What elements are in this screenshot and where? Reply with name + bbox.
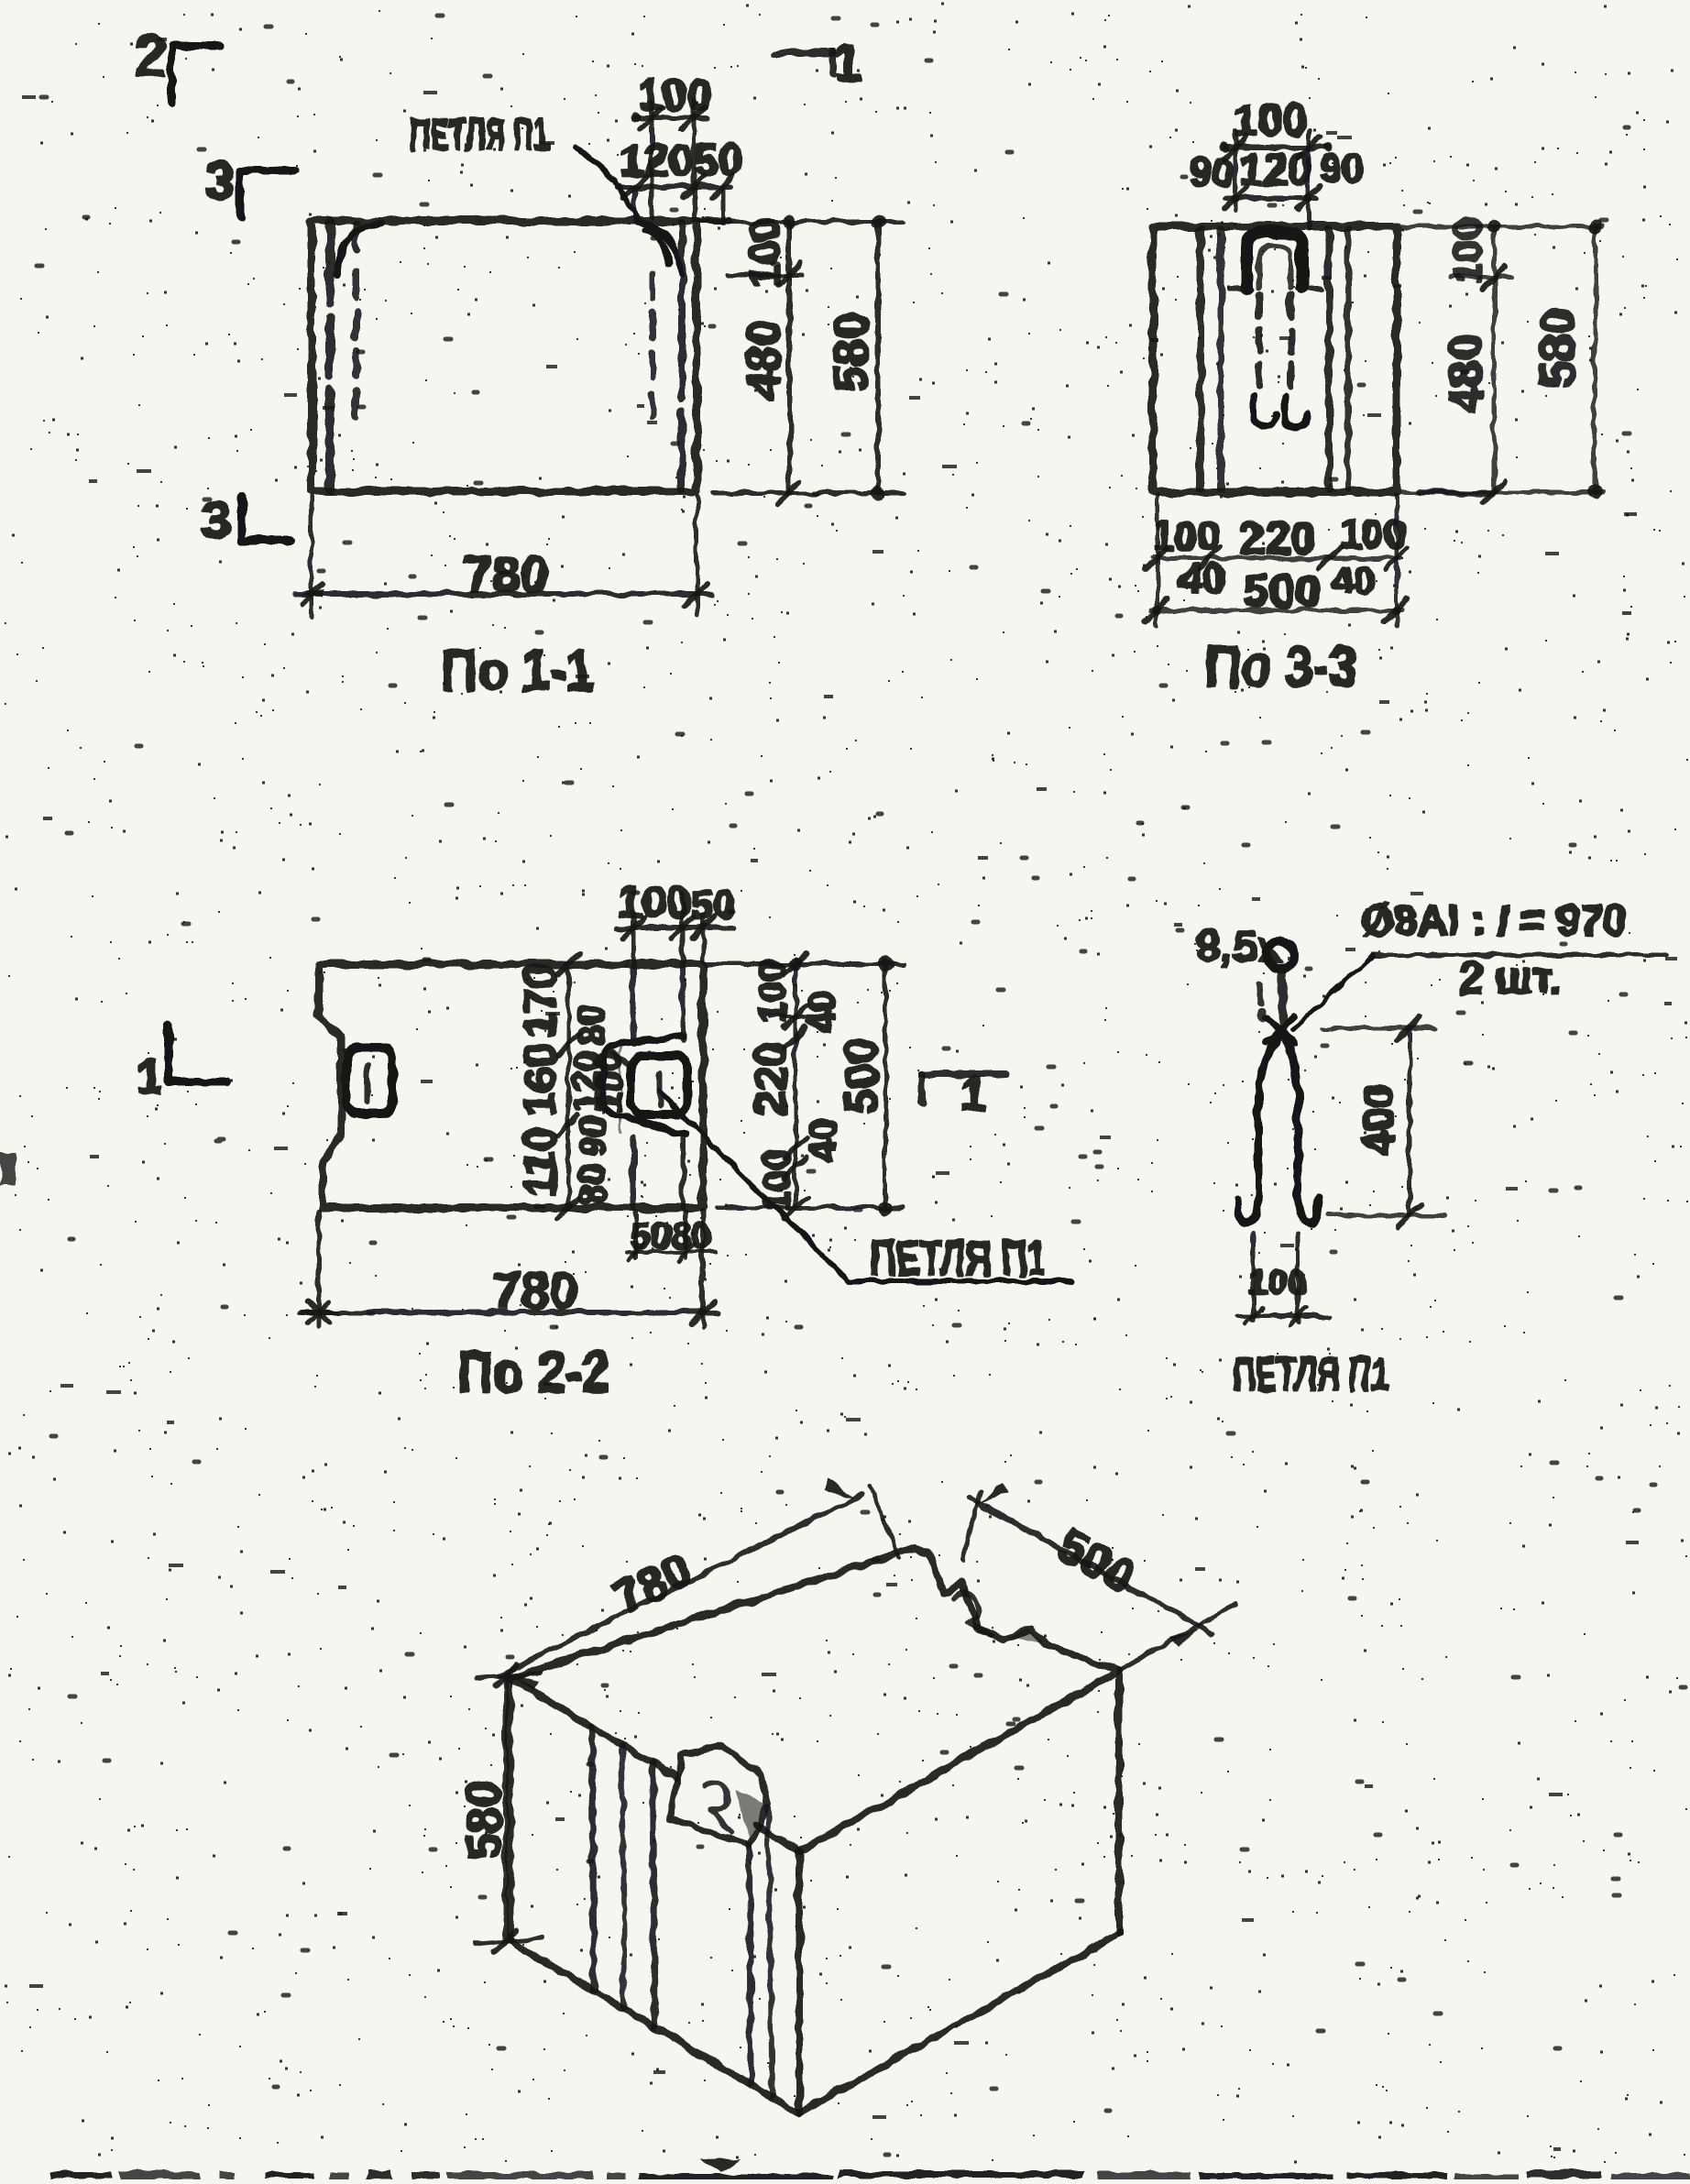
svg-text:80: 80 — [572, 1004, 612, 1046]
svg-text:ПЕТЛЯ П1: ПЕТЛЯ П1 — [871, 1230, 1047, 1286]
svg-text:90: 90 — [573, 1116, 613, 1158]
svg-text:480: 480 — [738, 320, 791, 400]
svg-text:ПЕТЛЯ П1: ПЕТЛЯ П1 — [1233, 1348, 1388, 1401]
svg-text:По 2-2: По 2-2 — [457, 1339, 609, 1405]
svg-text:8,5х: 8,5х — [1196, 924, 1282, 972]
svg-text:580: 580 — [458, 1781, 511, 1860]
svg-text:480: 480 — [1440, 335, 1493, 414]
svg-text:40: 40 — [800, 991, 843, 1034]
svg-text:1: 1 — [833, 34, 861, 92]
svg-text:580: 580 — [1531, 309, 1585, 389]
svg-text:По 1-1: По 1-1 — [442, 637, 594, 703]
svg-text:100: 100 — [751, 960, 794, 1024]
svg-text:100: 100 — [755, 1148, 798, 1213]
svg-text:40: 40 — [1333, 559, 1376, 602]
svg-text:100: 100 — [618, 879, 691, 927]
svg-text:1: 1 — [960, 1068, 987, 1121]
svg-text:Ø8АI : l = 970: Ø8АI : l = 970 — [1361, 896, 1627, 944]
svg-text:780: 780 — [492, 1262, 577, 1320]
svg-text:2 шт.: 2 шт. — [1459, 955, 1563, 1004]
svg-text:100: 100 — [589, 1051, 630, 1113]
svg-text:1: 1 — [136, 1048, 163, 1103]
svg-text:ПЕТЛЯ П1: ПЕТЛЯ П1 — [410, 110, 549, 159]
svg-text:2: 2 — [135, 25, 166, 88]
svg-text:500: 500 — [836, 1037, 887, 1114]
svg-text:3: 3 — [202, 491, 231, 551]
svg-text:120: 120 — [620, 137, 693, 186]
svg-text:40: 40 — [802, 1119, 845, 1162]
svg-text:90: 90 — [1320, 147, 1365, 192]
svg-text:780: 780 — [463, 545, 548, 603]
svg-text:По 3-3: По 3-3 — [1205, 633, 1357, 699]
svg-text:3: 3 — [205, 152, 235, 212]
svg-text:80: 80 — [573, 1164, 613, 1205]
svg-text:100: 100 — [1339, 512, 1406, 557]
svg-text:580: 580 — [825, 313, 878, 392]
svg-text:400: 400 — [1355, 1085, 1402, 1156]
svg-text:100: 100 — [1248, 1264, 1306, 1302]
svg-text:120: 120 — [1239, 147, 1312, 195]
svg-text:100: 100 — [741, 218, 788, 289]
svg-text:90: 90 — [1190, 150, 1235, 195]
svg-text:100: 100 — [1446, 217, 1491, 284]
svg-text:40: 40 — [1179, 554, 1225, 602]
svg-text:220: 220 — [748, 1042, 796, 1115]
